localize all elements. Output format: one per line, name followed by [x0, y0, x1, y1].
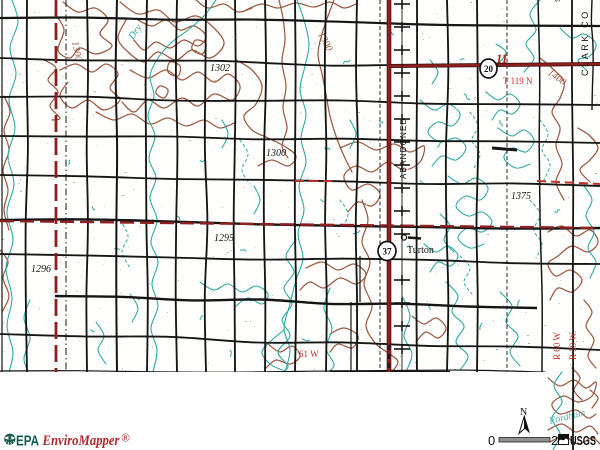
svg-text:1300: 1300	[266, 148, 286, 159]
svg-text:USGS: USGS	[570, 434, 596, 448]
svg-text:®: ®	[122, 433, 130, 445]
svg-text:T 119 N: T 119 N	[503, 76, 533, 86]
svg-text:EPA: EPA	[16, 433, 39, 450]
svg-text:1302: 1302	[210, 63, 230, 74]
svg-text:N: N	[520, 407, 527, 418]
svg-text:2: 2	[551, 433, 558, 448]
svg-text:R 59 W.: R 59 W.	[568, 331, 578, 360]
svg-text:20: 20	[484, 64, 494, 74]
svg-text:11: 11	[496, 52, 508, 66]
svg-text:EnviroMapper: EnviroMapper	[42, 433, 120, 449]
svg-text:ABANDONED: ABANDONED	[399, 118, 408, 179]
svg-text:61 W: 61 W	[299, 349, 319, 359]
svg-text:Turton: Turton	[407, 245, 434, 256]
svg-text:S 5: S 5	[555, 0, 562, 2]
svg-text:CLARK CO: CLARK CO	[580, 9, 590, 76]
svg-text:1295: 1295	[214, 233, 234, 244]
svg-text:R 60 W: R 60 W	[552, 332, 562, 360]
svg-text:1296: 1296	[31, 264, 51, 275]
svg-text:0: 0	[488, 433, 495, 448]
svg-text:1375: 1375	[511, 191, 531, 202]
svg-text:37: 37	[383, 247, 393, 257]
